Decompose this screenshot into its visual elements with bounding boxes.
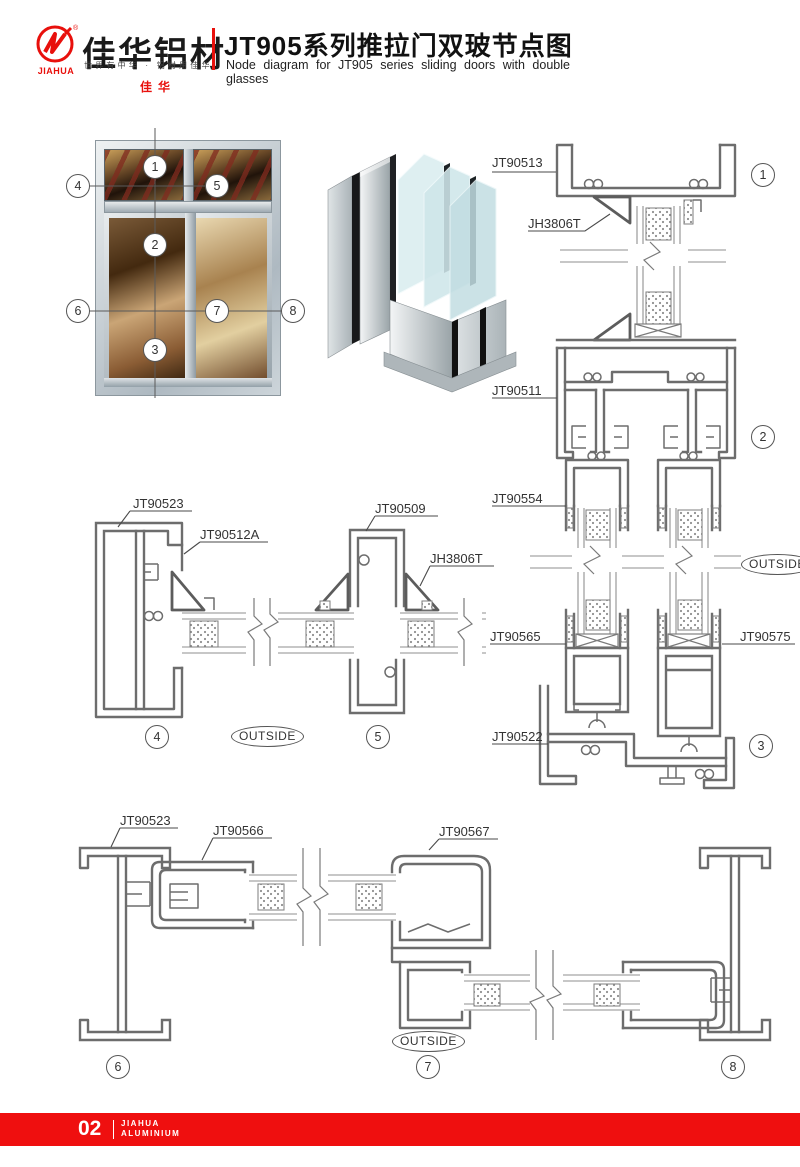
elevation-marker-1: 1 [143,155,167,179]
elevation-marker-2: 2 [143,233,167,257]
horizontal-section-bottom-drawing [80,848,770,1040]
detail-marker-4: 4 [145,725,169,749]
elevation-marker-8: 8 [281,299,305,323]
profile-label-jt90523-bottom: JT90523 [120,813,171,828]
profile-label-jt90513: JT90513 [492,155,543,170]
detail-marker-3: 3 [749,734,773,758]
footer-bar: 02 JIAHUA ALUMINIUM [0,1113,800,1146]
profile-label-jt90523-mid: JT90523 [133,496,184,511]
profile-label-jt90511: JT90511 [492,383,542,398]
detail-marker-7: 7 [416,1055,440,1079]
horizontal-section-top-drawing [96,523,486,717]
profile-label-jt90522: JT90522 [492,729,543,744]
detail-marker-6: 6 [106,1055,130,1079]
profile-label-jt90554: JT90554 [492,491,543,506]
profile-label-jt90575: JT90575 [740,629,791,644]
detail-marker-8: 8 [721,1055,745,1079]
footer-brand: JIAHUA ALUMINIUM [121,1119,180,1139]
footer-brand-line2: ALUMINIUM [121,1129,180,1139]
profile-label-jh3806t-right: JH3806T [528,216,581,231]
footer-brand-line1: JIAHUA [121,1119,180,1129]
profile-label-jt90566: JT90566 [213,823,264,838]
elevation-marker-6: 6 [66,299,90,323]
footer-divider [113,1120,114,1139]
outside-tag-bottom: OUTSIDE [392,1031,465,1052]
catalog-page: ® JIAHUA 佳华 佳华铝材 世界有中华 · 铝材用佳华 JT905系列推拉… [0,0,800,1167]
elevation-marker-5: 5 [205,174,229,198]
detail-marker-5: 5 [366,725,390,749]
outside-tag-middle: OUTSIDE [231,726,304,747]
detail-marker-1: 1 [751,163,775,187]
profile-label-jt90509: JT90509 [375,501,426,516]
profile-label-jh3806t-mid: JH3806T [430,551,483,566]
elevation-marker-7: 7 [205,299,229,323]
profile-3d-render [328,154,516,392]
profile-label-jt90567: JT90567 [439,824,490,839]
page-number: 02 [78,1117,101,1141]
vertical-section-drawing [530,145,741,788]
profile-label-jt90565: JT90565 [490,629,541,644]
elevation-marker-3: 3 [143,338,167,362]
section-drawings [0,0,800,1167]
detail-marker-2: 2 [751,425,775,449]
elevation-marker-4: 4 [66,174,90,198]
profile-label-jt90512a: JT90512A [200,527,259,542]
